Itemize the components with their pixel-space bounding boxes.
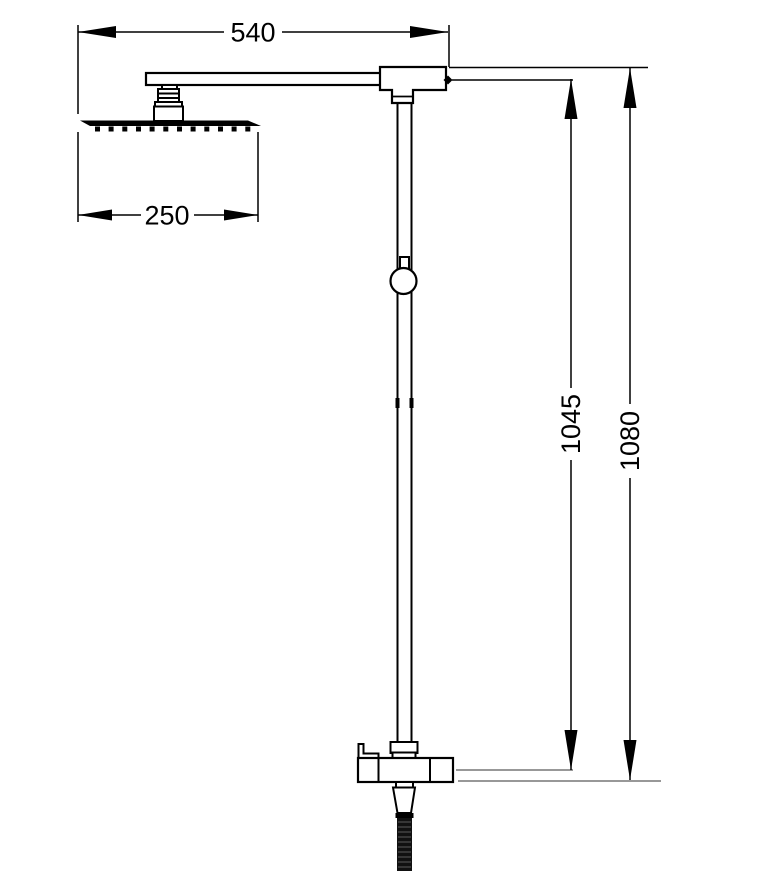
dimension-label-540: 540 — [230, 18, 275, 48]
arrowhead-left — [78, 210, 112, 221]
diverter-body — [358, 758, 453, 782]
shower-column-drawing: 540 250 — [0, 0, 764, 890]
rain-head-nozzles — [95, 127, 250, 132]
arrowhead-right — [224, 210, 258, 221]
dimension-label-1045: 1045 — [556, 394, 586, 454]
diverter-collar — [391, 742, 418, 753]
dimension-label-1080: 1080 — [615, 411, 645, 471]
arrowhead-up — [624, 68, 637, 108]
arrowhead-down — [624, 740, 637, 780]
slider-knob — [391, 268, 417, 294]
rain-head-plate — [80, 121, 261, 127]
arrowhead-left — [78, 26, 116, 38]
hand-shower-hose — [397, 818, 412, 871]
pipe-joint-mark-right — [410, 398, 414, 408]
shower-arm — [146, 73, 382, 85]
head-connector — [154, 85, 183, 121]
pipe-joint-mark-left — [396, 398, 400, 408]
technical-drawing-canvas: 540 250 — [0, 0, 764, 890]
diverter-lever-hook — [359, 744, 379, 758]
wall-tee-block — [380, 67, 446, 103]
hose-cone — [393, 788, 415, 814]
hose-ferrule — [396, 813, 414, 818]
dimension-label-250: 250 — [144, 201, 189, 231]
arrowhead-right — [410, 26, 448, 38]
riser-pipe — [398, 101, 412, 744]
arrowhead-up — [565, 79, 578, 119]
arrowhead-down — [565, 730, 578, 770]
